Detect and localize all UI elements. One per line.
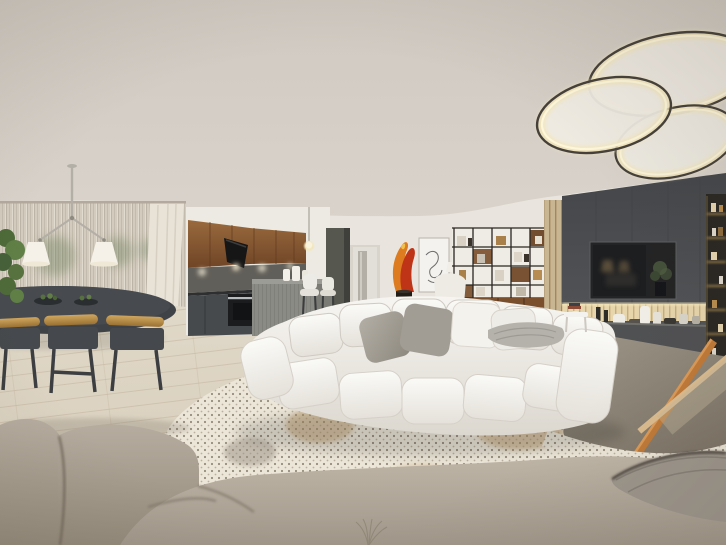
slat-glow	[562, 303, 710, 306]
mirror-reflection	[360, 252, 362, 303]
curtain-rail	[0, 201, 186, 204]
books	[568, 306, 581, 309]
oven-glass	[233, 303, 255, 320]
hood-light	[233, 264, 240, 271]
door-mirror-strip	[358, 251, 367, 304]
panorama-viewport	[0, 0, 726, 545]
panorama-render	[0, 0, 726, 545]
cushion-left-1	[0, 419, 60, 545]
pendant-bulb	[306, 242, 312, 248]
